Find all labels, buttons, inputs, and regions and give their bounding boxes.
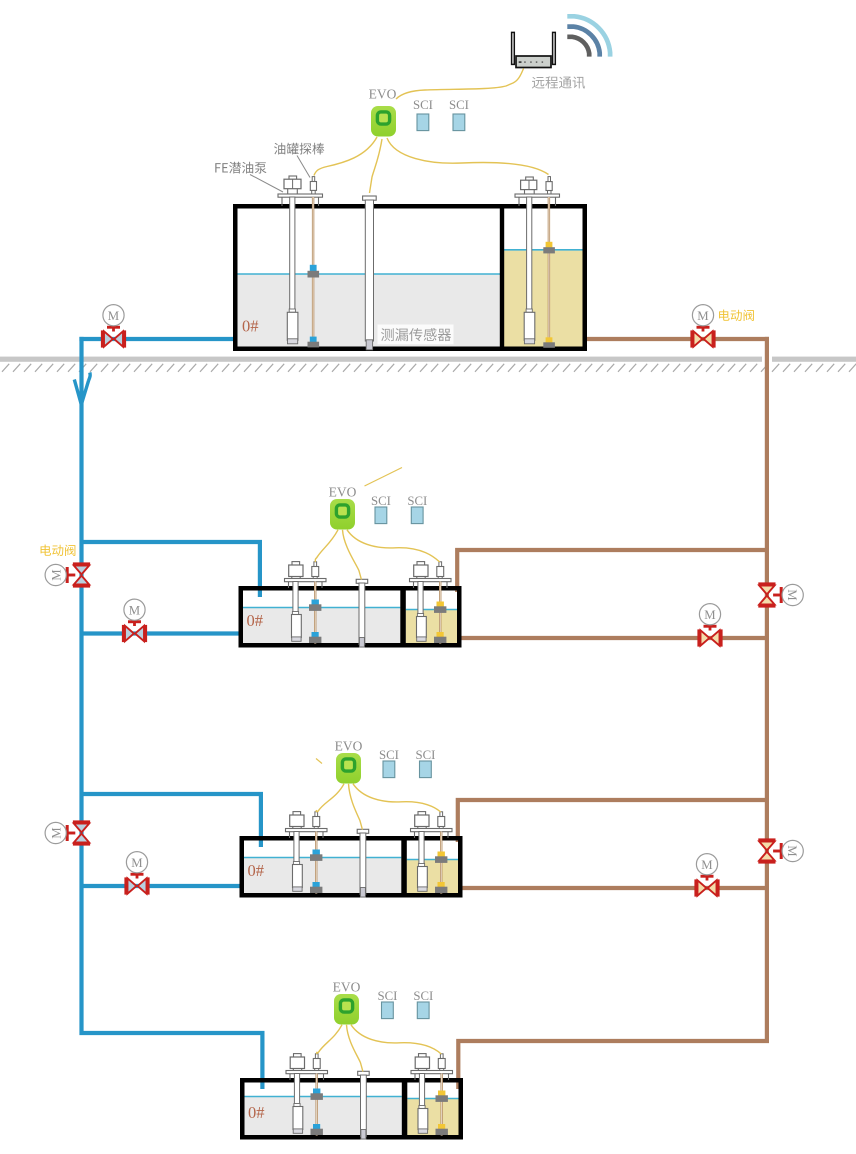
- svg-text:SCI: SCI: [379, 748, 399, 762]
- svg-text:SCI: SCI: [413, 989, 433, 1003]
- svg-text:0#: 0#: [248, 1103, 265, 1122]
- svg-text:M: M: [49, 569, 63, 580]
- svg-text:SCI: SCI: [449, 98, 469, 112]
- svg-text:SCI: SCI: [413, 98, 433, 112]
- svg-text:0#: 0#: [242, 317, 259, 336]
- svg-text:EVO: EVO: [329, 485, 357, 500]
- svg-text:M: M: [131, 856, 142, 870]
- svg-text:0#: 0#: [247, 611, 264, 630]
- svg-text:EVO: EVO: [369, 87, 397, 102]
- svg-text:0#: 0#: [248, 861, 265, 880]
- svg-text:SCI: SCI: [371, 494, 391, 508]
- svg-text:M: M: [785, 845, 799, 856]
- svg-text:SCI: SCI: [378, 989, 398, 1003]
- svg-text:EVO: EVO: [333, 980, 361, 995]
- svg-text:M: M: [697, 309, 708, 323]
- svg-text:M: M: [129, 603, 140, 617]
- svg-text:M: M: [49, 827, 63, 838]
- svg-text:M: M: [785, 589, 799, 600]
- svg-text:M: M: [704, 608, 715, 622]
- svg-text:M: M: [108, 309, 119, 323]
- svg-text:M: M: [701, 858, 712, 872]
- svg-text:SCI: SCI: [416, 748, 436, 762]
- svg-text:SCI: SCI: [407, 494, 427, 508]
- svg-text:EVO: EVO: [335, 739, 363, 754]
